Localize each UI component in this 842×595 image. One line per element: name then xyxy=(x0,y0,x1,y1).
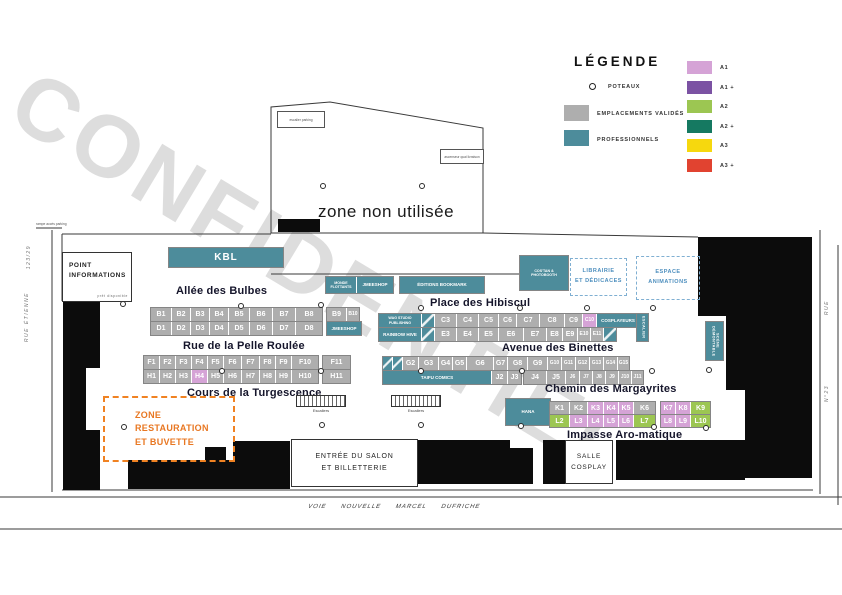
floor-plan: CONFIDENTIEL KBL xyxy=(0,0,842,595)
legend-swatch-a3 xyxy=(687,139,712,152)
legend-panel: LÉGENDE POTEAUX EMPLACEMENTS VALIDÉS PRO… xyxy=(560,40,835,220)
unused-zone-label: zone non utilisée xyxy=(318,202,454,222)
legend-pillar-label: POTEAUX xyxy=(608,84,640,90)
legend-category-label: A2 + xyxy=(720,124,734,130)
legend-validated-label: EMPLACEMENTS VALIDÉS xyxy=(597,111,684,117)
right-street-number: N°23 xyxy=(824,385,830,402)
legend-category-label: A3 + xyxy=(720,163,734,169)
pillar-icon xyxy=(589,83,596,90)
cosplay-room-label: SALLE COSPLAY xyxy=(571,451,607,473)
entrance-ticketing[interactable]: ENTRÉE DU SALON ET BILLETTERIE xyxy=(291,439,418,487)
left-street-name: RUE ÉTIENNE xyxy=(24,292,30,342)
library-signing-zone[interactable]: LIBRAIRIE ET DÉDICACES xyxy=(570,258,627,296)
legend-swatch-a3 xyxy=(687,159,712,172)
entrance-label: ENTRÉE DU SALON ET BILLETTERIE xyxy=(315,451,393,475)
legend-professional-swatch xyxy=(564,130,589,146)
legend-category-label: A2 xyxy=(720,104,728,110)
information-point[interactable]: POINT INFORMATIONS prêt disponible xyxy=(62,252,132,302)
ramp-note: rampe accès parking xyxy=(36,222,67,226)
legend-validated-swatch xyxy=(564,105,589,121)
legend-swatch-a2 xyxy=(687,120,712,133)
legend-swatch-a1 xyxy=(687,81,712,94)
library-zone-label: LIBRAIRIE ET DÉDICACES xyxy=(575,267,622,287)
bottom-road-name: VOIE NOUVELLE MARCEL DUFRICHE xyxy=(307,504,481,510)
legend-professional-label: PROFESSIONNELS xyxy=(597,137,659,143)
legend-swatch-a1 xyxy=(687,61,712,74)
information-point-label: POINT INFORMATIONS xyxy=(69,262,126,279)
cosplay-room[interactable]: SALLE COSPLAY xyxy=(565,440,613,484)
animation-zone-label: ESPACE ANIMATIONS xyxy=(648,268,687,288)
right-street-name: RUE xyxy=(824,300,830,315)
restaurant-zone[interactable]: ZONE RESTAURATION ET BUVETTE xyxy=(103,396,235,462)
delivery-note-box: ascenseur quai livraison xyxy=(440,149,484,164)
legend-category-label: A1 + xyxy=(720,85,734,91)
legend-swatch-a2 xyxy=(687,100,712,113)
animation-zone[interactable]: ESPACE ANIMATIONS xyxy=(636,256,700,300)
left-street-number: 123/29 xyxy=(26,245,32,269)
legend-title: LÉGENDE xyxy=(574,54,660,69)
legend-category-label: A1 xyxy=(720,65,728,71)
restaurant-zone-label: ZONE RESTAURATION ET BUVETTE xyxy=(135,409,233,448)
legend-category-label: A3 xyxy=(720,143,728,149)
parking-note-box: escalier parking xyxy=(277,111,325,128)
information-point-note: prêt disponible xyxy=(98,294,128,299)
